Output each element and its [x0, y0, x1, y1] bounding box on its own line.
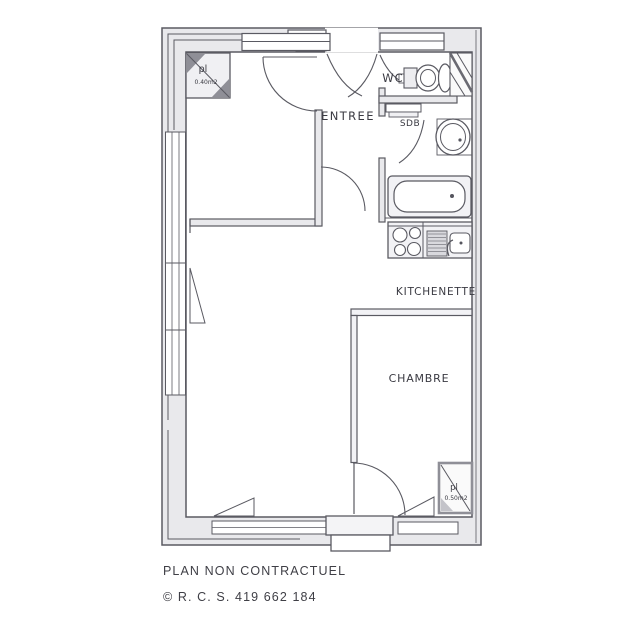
closet-chambre-label: pl — [450, 483, 458, 493]
sdb-room: SDB — [386, 104, 472, 217]
interior-walls — [190, 88, 472, 514]
window — [331, 535, 390, 551]
closet-entry-label: pl — [199, 64, 208, 75]
door-arc — [263, 57, 317, 111]
plan-disclaimer: PLAN NON CONTRACTUEL — [163, 564, 346, 578]
window — [398, 522, 458, 534]
bathtub-drain — [450, 194, 454, 198]
front-door-opening — [325, 28, 378, 53]
door-arc — [353, 463, 405, 515]
sdb-shelf — [386, 104, 421, 117]
duct-shaft-hatch — [450, 53, 472, 96]
floor-plan-page: pl 0.40m2 WC SDB — [0, 0, 640, 640]
window-casement-triangle — [214, 498, 254, 516]
door-arc — [327, 54, 362, 96]
closet-entry: pl 0.40m2 — [186, 53, 230, 98]
floor-plan-svg: pl 0.40m2 WC SDB — [0, 0, 640, 640]
window — [242, 34, 330, 51]
room-label-entree: ENTREE — [321, 109, 375, 123]
room-label-sdb: SDB — [400, 119, 420, 129]
window — [326, 516, 393, 535]
rcs-number: © R. C. S. 419 662 184 — [163, 590, 346, 604]
window — [380, 33, 444, 50]
bathtub-icon — [388, 176, 471, 217]
room-label-wc: WC — [382, 71, 403, 85]
room-label-kitchenette: KITCHENETTE — [396, 286, 476, 298]
closet-chambre-area: 0.50m2 — [444, 495, 467, 502]
washbasin-icon — [436, 119, 472, 155]
kitchenette: KITCHENETTE — [388, 222, 476, 298]
room-label-chambre: CHAMBRE — [389, 372, 450, 385]
door-arc — [321, 167, 365, 211]
wc-room: WC — [382, 53, 472, 96]
window-casement-triangle — [190, 268, 205, 323]
drainer — [427, 231, 447, 256]
sink-drain — [460, 242, 463, 245]
toilet-icon — [399, 64, 452, 92]
closet-chambre: pl 0.50m2 — [439, 463, 472, 513]
closet-entry-area: 0.40m2 — [194, 79, 217, 86]
footer: PLAN NON CONTRACTUEL © R. C. S. 419 662 … — [163, 564, 346, 604]
